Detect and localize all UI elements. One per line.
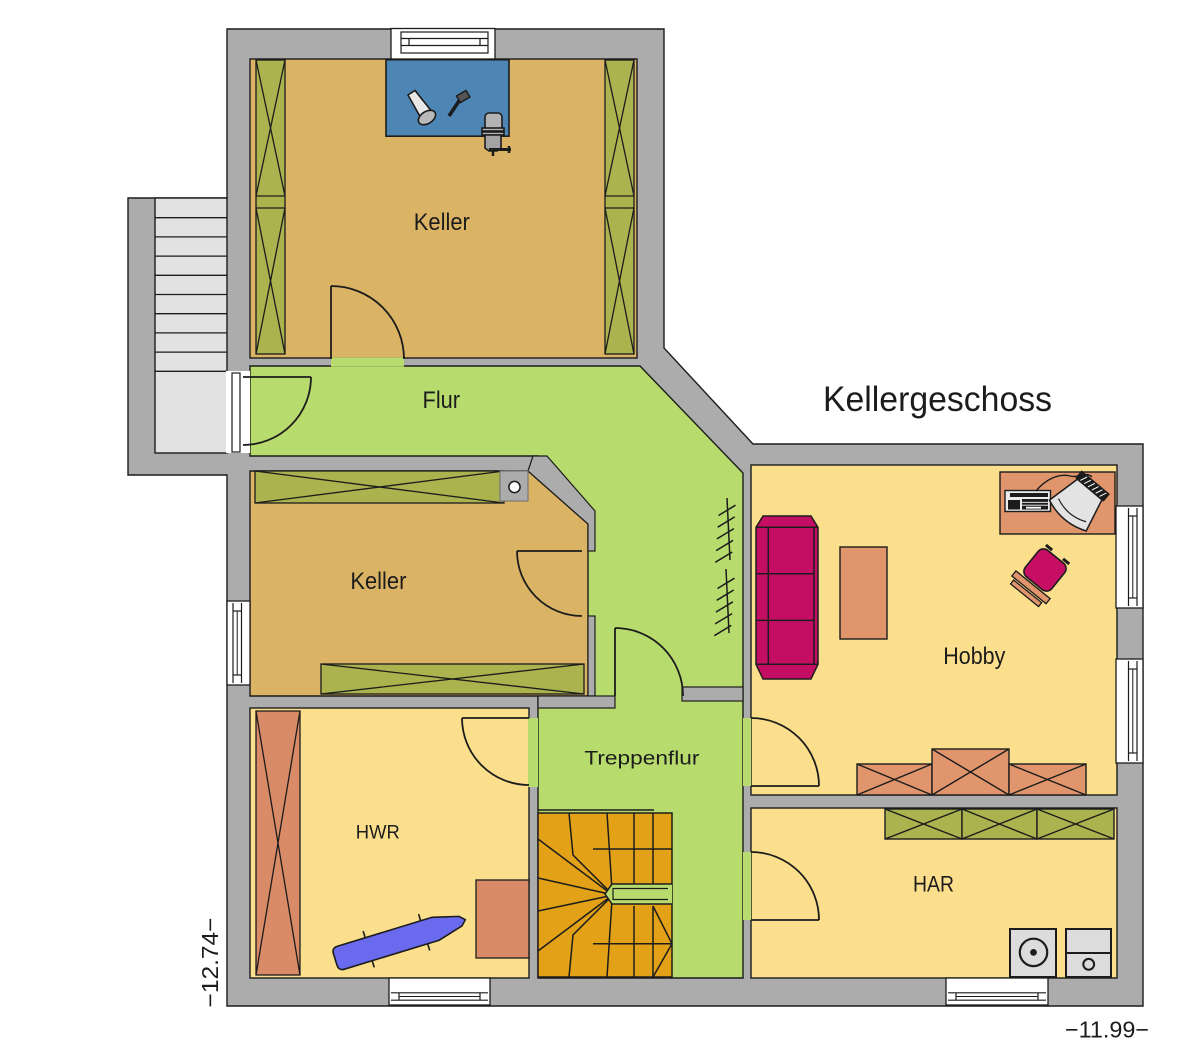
svg-text:−11.99−: −11.99− — [1065, 1017, 1149, 1043]
svg-text:HWR: HWR — [356, 823, 400, 844]
svg-text:HAR: HAR — [913, 872, 954, 897]
svg-text:Keller: Keller — [414, 209, 470, 236]
svg-text:Keller: Keller — [350, 568, 406, 595]
svg-text:Hobby: Hobby — [943, 643, 1005, 670]
svg-text:Kellergeschoss: Kellergeschoss — [823, 380, 1052, 419]
svg-text:Flur: Flur — [423, 387, 461, 414]
svg-text:Treppenflur: Treppenflur — [584, 747, 700, 769]
svg-text:−12.74−: −12.74− — [197, 918, 223, 1008]
